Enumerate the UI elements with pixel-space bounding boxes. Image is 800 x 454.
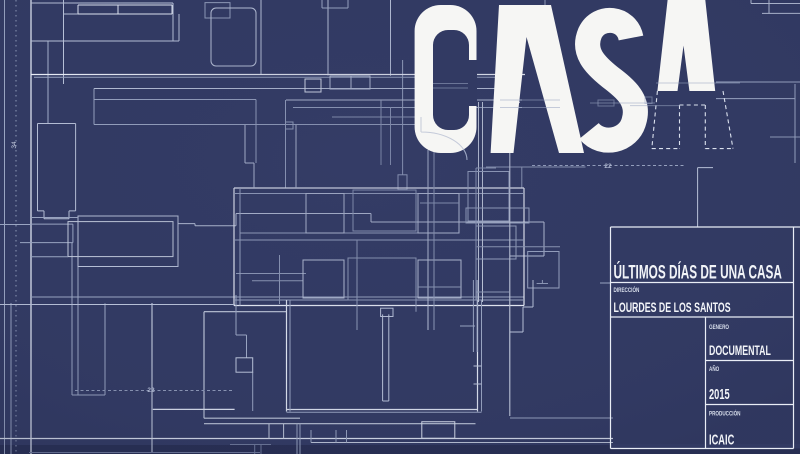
- svg-text:GENERO: GENERO: [709, 324, 729, 331]
- svg-text:ÚLTIMOS DÍAS DE UNA CASA: ÚLTIMOS DÍAS DE UNA CASA: [614, 260, 783, 283]
- svg-text:PRODUCCIÓN: PRODUCCIÓN: [709, 409, 741, 418]
- svg-text:DOCUMENTAL: DOCUMENTAL: [709, 342, 771, 359]
- svg-text:2015: 2015: [709, 386, 730, 403]
- svg-text:LOURDES DE LOS SANTOS: LOURDES DE LOS SANTOS: [614, 299, 731, 316]
- svg-text:ICAIC: ICAIC: [709, 431, 734, 448]
- svg-text:AÑO: AÑO: [709, 365, 720, 373]
- svg-text:DIRECCIÓN: DIRECCIÓN: [614, 285, 640, 294]
